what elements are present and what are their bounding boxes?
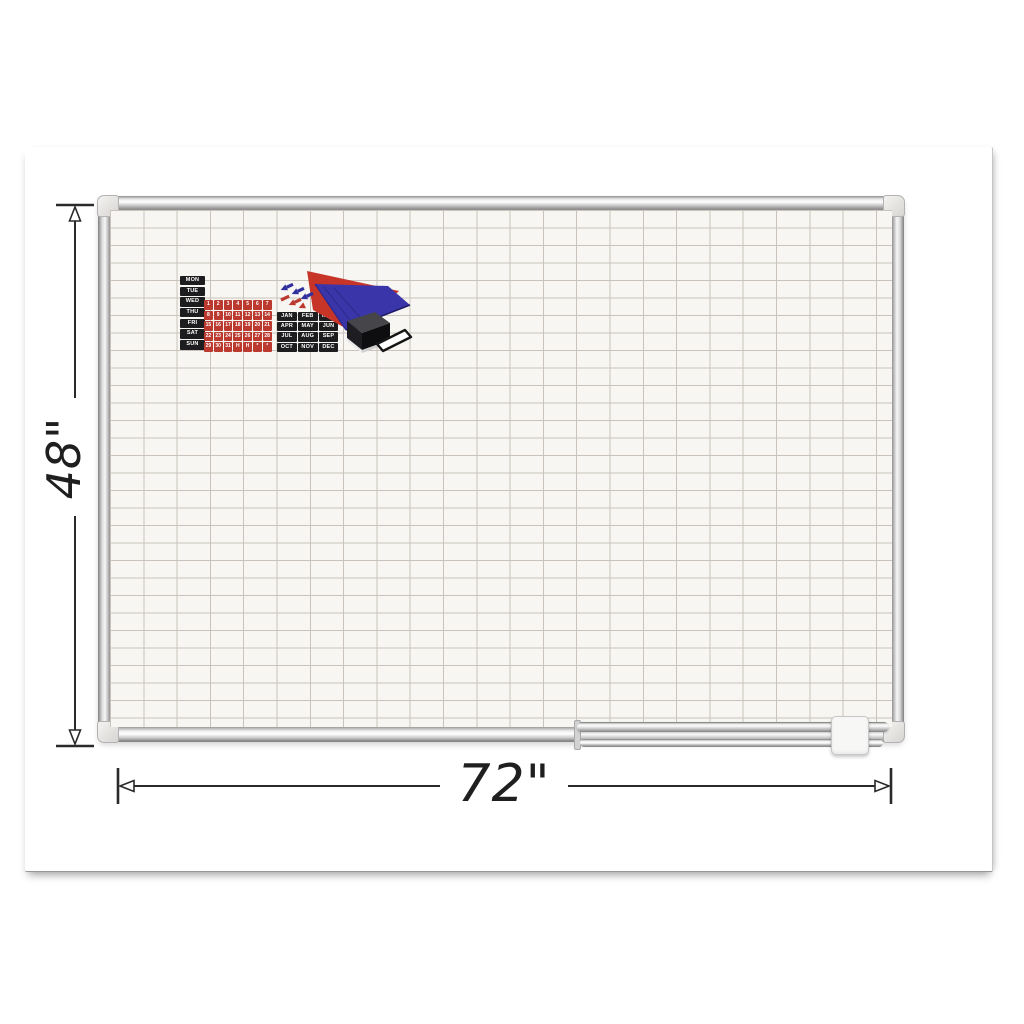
month-tile: JUN bbox=[319, 322, 339, 331]
date-tile: 12 bbox=[243, 311, 252, 321]
day-tile: FRI bbox=[180, 319, 205, 328]
date-tile: 14 bbox=[263, 311, 272, 321]
date-tile: 25 bbox=[233, 332, 242, 342]
day-label-tiles: MONTUEWEDTHUFRISATSUN bbox=[180, 276, 205, 350]
date-tiles: 1234567891011121314151617181920212223242… bbox=[204, 300, 272, 352]
date-tile: 9 bbox=[214, 311, 223, 321]
date-tile: 29 bbox=[204, 342, 213, 352]
date-tile: 17 bbox=[224, 321, 233, 331]
date-tile: 23 bbox=[214, 332, 223, 342]
month-tile: AUG bbox=[298, 332, 318, 341]
date-tile: 11 bbox=[233, 311, 242, 321]
date-tile: 1 bbox=[204, 300, 213, 310]
date-tile: 4 bbox=[233, 300, 242, 310]
magnet-strip bbox=[377, 330, 411, 351]
day-tile: SAT bbox=[180, 329, 205, 338]
date-tile: 21 bbox=[263, 321, 272, 331]
whiteboard: MONTUEWEDTHUFRISATSUN 123456789101112131… bbox=[98, 196, 904, 742]
date-tile: 27 bbox=[253, 332, 262, 342]
month-tile: JAN bbox=[277, 312, 297, 321]
day-tile: WED bbox=[180, 297, 205, 306]
month-tile: MAR bbox=[319, 312, 339, 321]
date-tile: 6 bbox=[253, 300, 262, 310]
month-tile: JUL bbox=[277, 332, 297, 341]
eraser bbox=[347, 312, 390, 353]
date-tile: 19 bbox=[243, 321, 252, 331]
date-tile: 30 bbox=[214, 342, 223, 352]
width-dimension-label: 72" bbox=[438, 753, 570, 815]
date-tile: 22 bbox=[204, 332, 213, 342]
date-tile: 20 bbox=[253, 321, 262, 331]
height-dimension-label: 48" bbox=[4, 400, 124, 516]
date-tile: 31 bbox=[224, 342, 233, 352]
frame-right-rail bbox=[891, 202, 904, 736]
date-tile: 10 bbox=[224, 311, 233, 321]
month-tile: SEP bbox=[319, 332, 339, 341]
date-tile: * bbox=[263, 342, 272, 352]
month-tile: APR bbox=[277, 322, 297, 331]
date-tile: 13 bbox=[253, 311, 262, 321]
date-tile: 28 bbox=[263, 332, 272, 342]
day-tile: THU bbox=[180, 308, 205, 317]
date-tile: 7 bbox=[263, 300, 272, 310]
day-tile: TUE bbox=[180, 287, 205, 296]
day-tile: MON bbox=[180, 276, 205, 285]
month-tile: MAY bbox=[298, 322, 318, 331]
month-tile: DEC bbox=[319, 343, 339, 352]
arrow-magnets bbox=[279, 281, 314, 311]
date-tile: 8 bbox=[204, 311, 213, 321]
grid-surface: MONTUEWEDTHUFRISATSUN 123456789101112131… bbox=[110, 210, 892, 727]
month-tile: FEB bbox=[298, 312, 318, 321]
date-tile: H bbox=[233, 342, 242, 352]
date-tile: 5 bbox=[243, 300, 252, 310]
frame-top-rail bbox=[104, 196, 898, 210]
date-tile: 3 bbox=[224, 300, 233, 310]
date-tile: 24 bbox=[224, 332, 233, 342]
day-tile: SUN bbox=[180, 340, 205, 349]
date-tile: * bbox=[253, 342, 262, 352]
date-tile: 18 bbox=[233, 321, 242, 331]
date-tile: H bbox=[243, 342, 252, 352]
month-tiles: JANFEBMARAPRMAYJUNJULAUGSEPOCTNOVDEC bbox=[277, 312, 338, 352]
date-tile: 16 bbox=[214, 321, 223, 331]
date-tile: 15 bbox=[204, 321, 213, 331]
month-tile: OCT bbox=[277, 343, 297, 352]
date-tile: 26 bbox=[243, 332, 252, 342]
tray-end-cap bbox=[831, 716, 869, 755]
date-tile: 2 bbox=[214, 300, 223, 310]
month-tile: NOV bbox=[298, 343, 318, 352]
accessories-graphic bbox=[110, 210, 892, 727]
